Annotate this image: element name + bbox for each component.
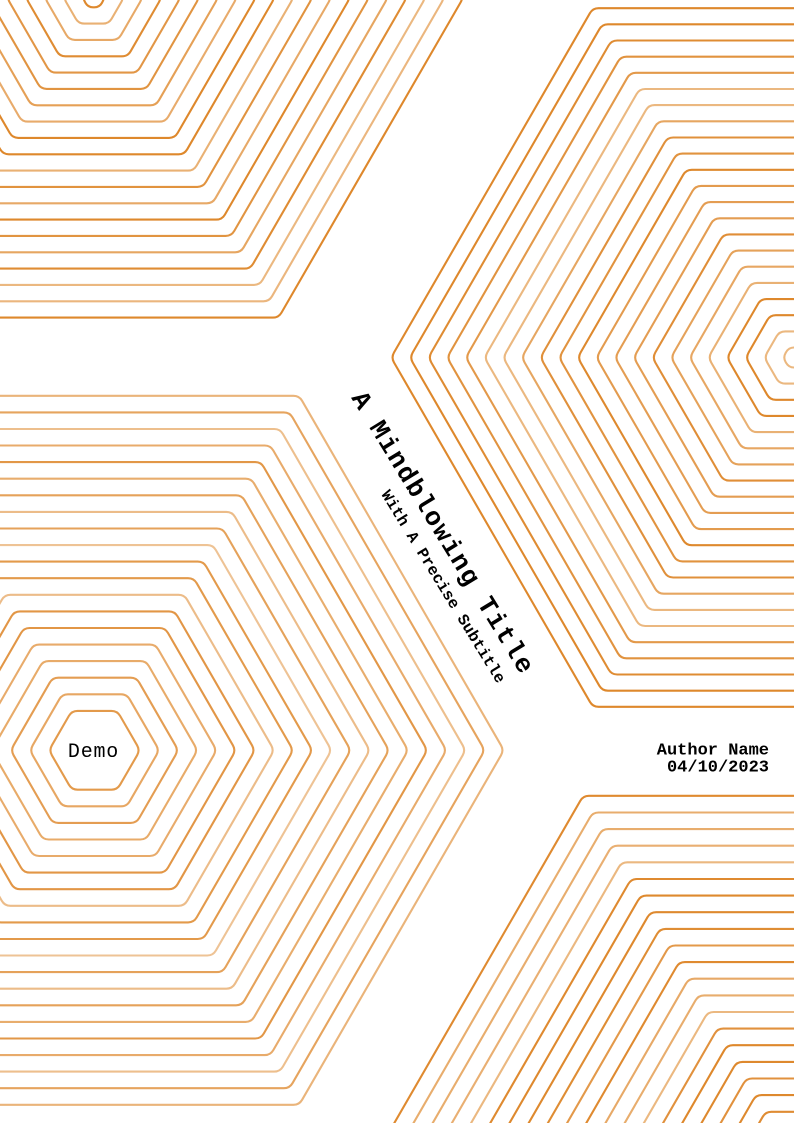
- svg-text:04/10/2023: 04/10/2023: [667, 759, 769, 778]
- svg-text:Demo: Demo: [68, 741, 119, 764]
